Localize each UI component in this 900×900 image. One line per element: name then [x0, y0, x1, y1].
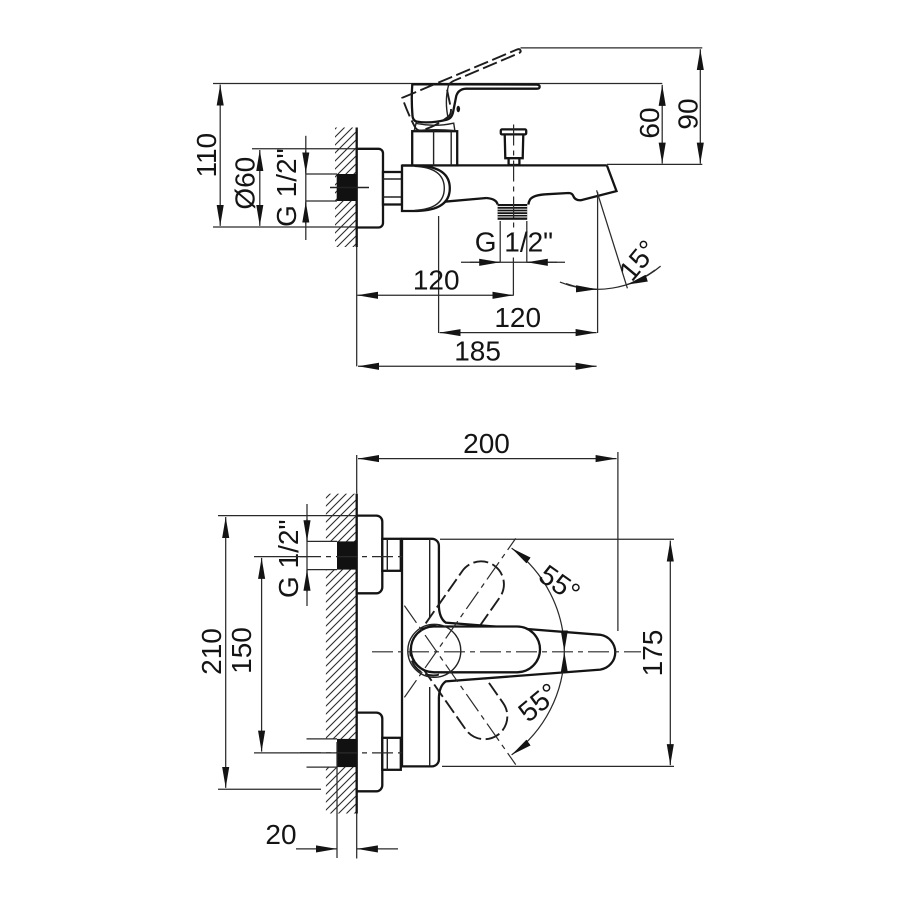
svg-text:60: 60 — [634, 107, 665, 138]
svg-text:150: 150 — [226, 627, 257, 674]
svg-text:120: 120 — [494, 302, 541, 333]
svg-text:G 1/2": G 1/2" — [475, 226, 553, 257]
svg-text:110: 110 — [191, 133, 222, 178]
svg-text:210: 210 — [196, 628, 227, 675]
svg-text:20: 20 — [265, 819, 296, 850]
svg-text:200: 200 — [463, 428, 510, 459]
svg-text:G 1/2": G 1/2" — [271, 148, 302, 226]
svg-text:175: 175 — [637, 630, 668, 677]
svg-text:120: 120 — [413, 265, 460, 296]
svg-text:185: 185 — [454, 336, 501, 367]
svg-text:G 1/2": G 1/2" — [273, 520, 304, 598]
svg-text:Ø60: Ø60 — [229, 157, 260, 210]
svg-text:90: 90 — [673, 98, 704, 129]
